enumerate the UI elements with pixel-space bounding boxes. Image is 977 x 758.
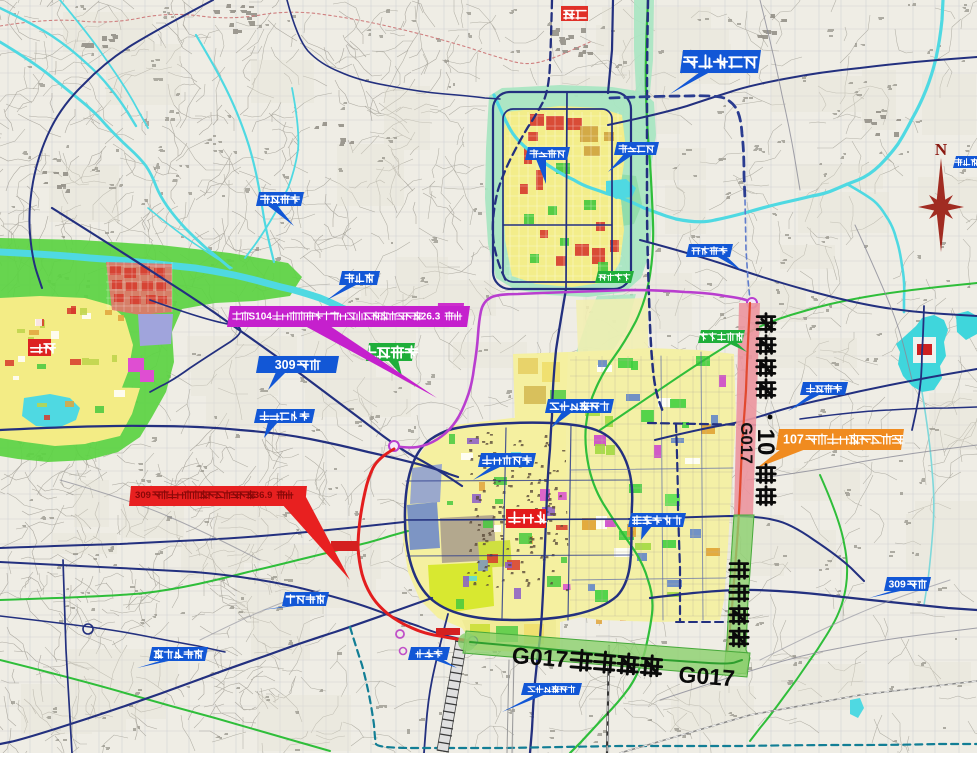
svg-text:G017: G017 [678, 661, 736, 691]
svg-text:G017: G017 [737, 422, 756, 464]
svg-text:107: 107 [783, 432, 804, 446]
svg-text:309: 309 [889, 580, 907, 591]
svg-text:N: N [935, 140, 948, 159]
svg-text:309: 309 [135, 490, 151, 501]
svg-text:36.9: 36.9 [254, 490, 273, 501]
svg-text:26.3: 26.3 [421, 311, 441, 322]
svg-text:G017: G017 [511, 642, 569, 672]
svg-text:309: 309 [275, 358, 296, 372]
svg-text:S104: S104 [249, 311, 273, 322]
